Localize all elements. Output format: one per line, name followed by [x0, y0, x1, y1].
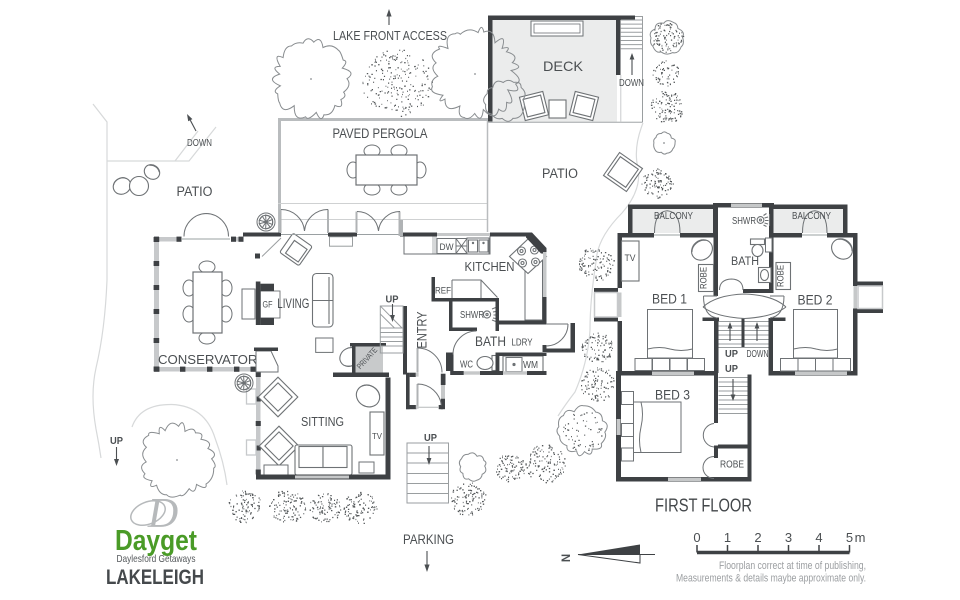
svg-text:TV: TV	[372, 431, 382, 441]
svg-text:PATIO: PATIO	[542, 166, 578, 181]
svg-text:BALCONY: BALCONY	[654, 211, 693, 222]
svg-text:2: 2	[754, 530, 761, 545]
svg-text:WM: WM	[523, 360, 538, 371]
svg-text:DOWN: DOWN	[747, 349, 769, 360]
svg-text:PAVED PERGOLA: PAVED PERGOLA	[333, 126, 428, 141]
svg-text:ROBE: ROBE	[776, 265, 786, 287]
svg-text:LDRY: LDRY	[512, 337, 533, 349]
svg-text:N: N	[561, 554, 573, 562]
svg-text:GF: GF	[263, 300, 273, 311]
svg-text:UP: UP	[725, 364, 738, 375]
svg-text:LIVING: LIVING	[277, 296, 309, 311]
svg-text:SHWR: SHWR	[460, 310, 484, 321]
svg-text:3: 3	[785, 530, 792, 545]
svg-text:SITTING: SITTING	[301, 415, 344, 429]
svg-text:m: m	[855, 530, 866, 545]
svg-text:UP: UP	[725, 349, 738, 360]
svg-text:SHWR: SHWR	[732, 216, 756, 227]
svg-text:Measurements & details maybe a: Measurements & details maybe approximate…	[676, 573, 866, 585]
svg-text:BED 1: BED 1	[652, 292, 687, 307]
svg-text:BALCONY: BALCONY	[792, 211, 831, 222]
svg-text:ROBE: ROBE	[720, 460, 744, 471]
svg-text:LAKELEIGH: LAKELEIGH	[106, 566, 204, 589]
svg-text:REF: REF	[435, 286, 451, 297]
svg-text:DOWN: DOWN	[187, 138, 212, 149]
svg-text:Daylesford Getaways: Daylesford Getaways	[117, 553, 196, 565]
svg-text:4: 4	[815, 530, 822, 545]
svg-text:1: 1	[724, 530, 731, 545]
svg-text:DW: DW	[440, 242, 454, 253]
svg-text:TV: TV	[625, 253, 637, 264]
svg-text:BATH: BATH	[731, 256, 759, 268]
svg-text:WC: WC	[460, 360, 473, 371]
svg-text:UP: UP	[386, 295, 399, 306]
svg-text:UP: UP	[424, 433, 437, 444]
svg-text:PARKING: PARKING	[403, 532, 454, 547]
svg-text:UP: UP	[110, 436, 123, 447]
svg-text:DECK: DECK	[543, 58, 584, 74]
svg-text:5: 5	[846, 530, 853, 545]
svg-text:BATH: BATH	[475, 334, 506, 349]
svg-text:BED 2: BED 2	[798, 293, 833, 308]
svg-text:ENTRY: ENTRY	[415, 312, 430, 349]
svg-text:DOWN: DOWN	[619, 78, 644, 89]
svg-text:BED 3: BED 3	[655, 388, 690, 403]
svg-text:Floorplan correct at time of p: Floorplan correct at time of publishing,	[719, 560, 866, 572]
svg-text:FIRST FLOOR: FIRST FLOOR	[655, 496, 752, 516]
svg-text:ROBE: ROBE	[699, 267, 709, 289]
svg-text:LAKE FRONT ACCESS: LAKE FRONT ACCESS	[333, 28, 447, 43]
svg-text:0: 0	[693, 530, 700, 545]
svg-text:CONSERVATORY: CONSERVATORY	[158, 352, 266, 367]
svg-text:PATIO: PATIO	[177, 184, 213, 199]
svg-text:KITCHEN: KITCHEN	[465, 260, 515, 274]
